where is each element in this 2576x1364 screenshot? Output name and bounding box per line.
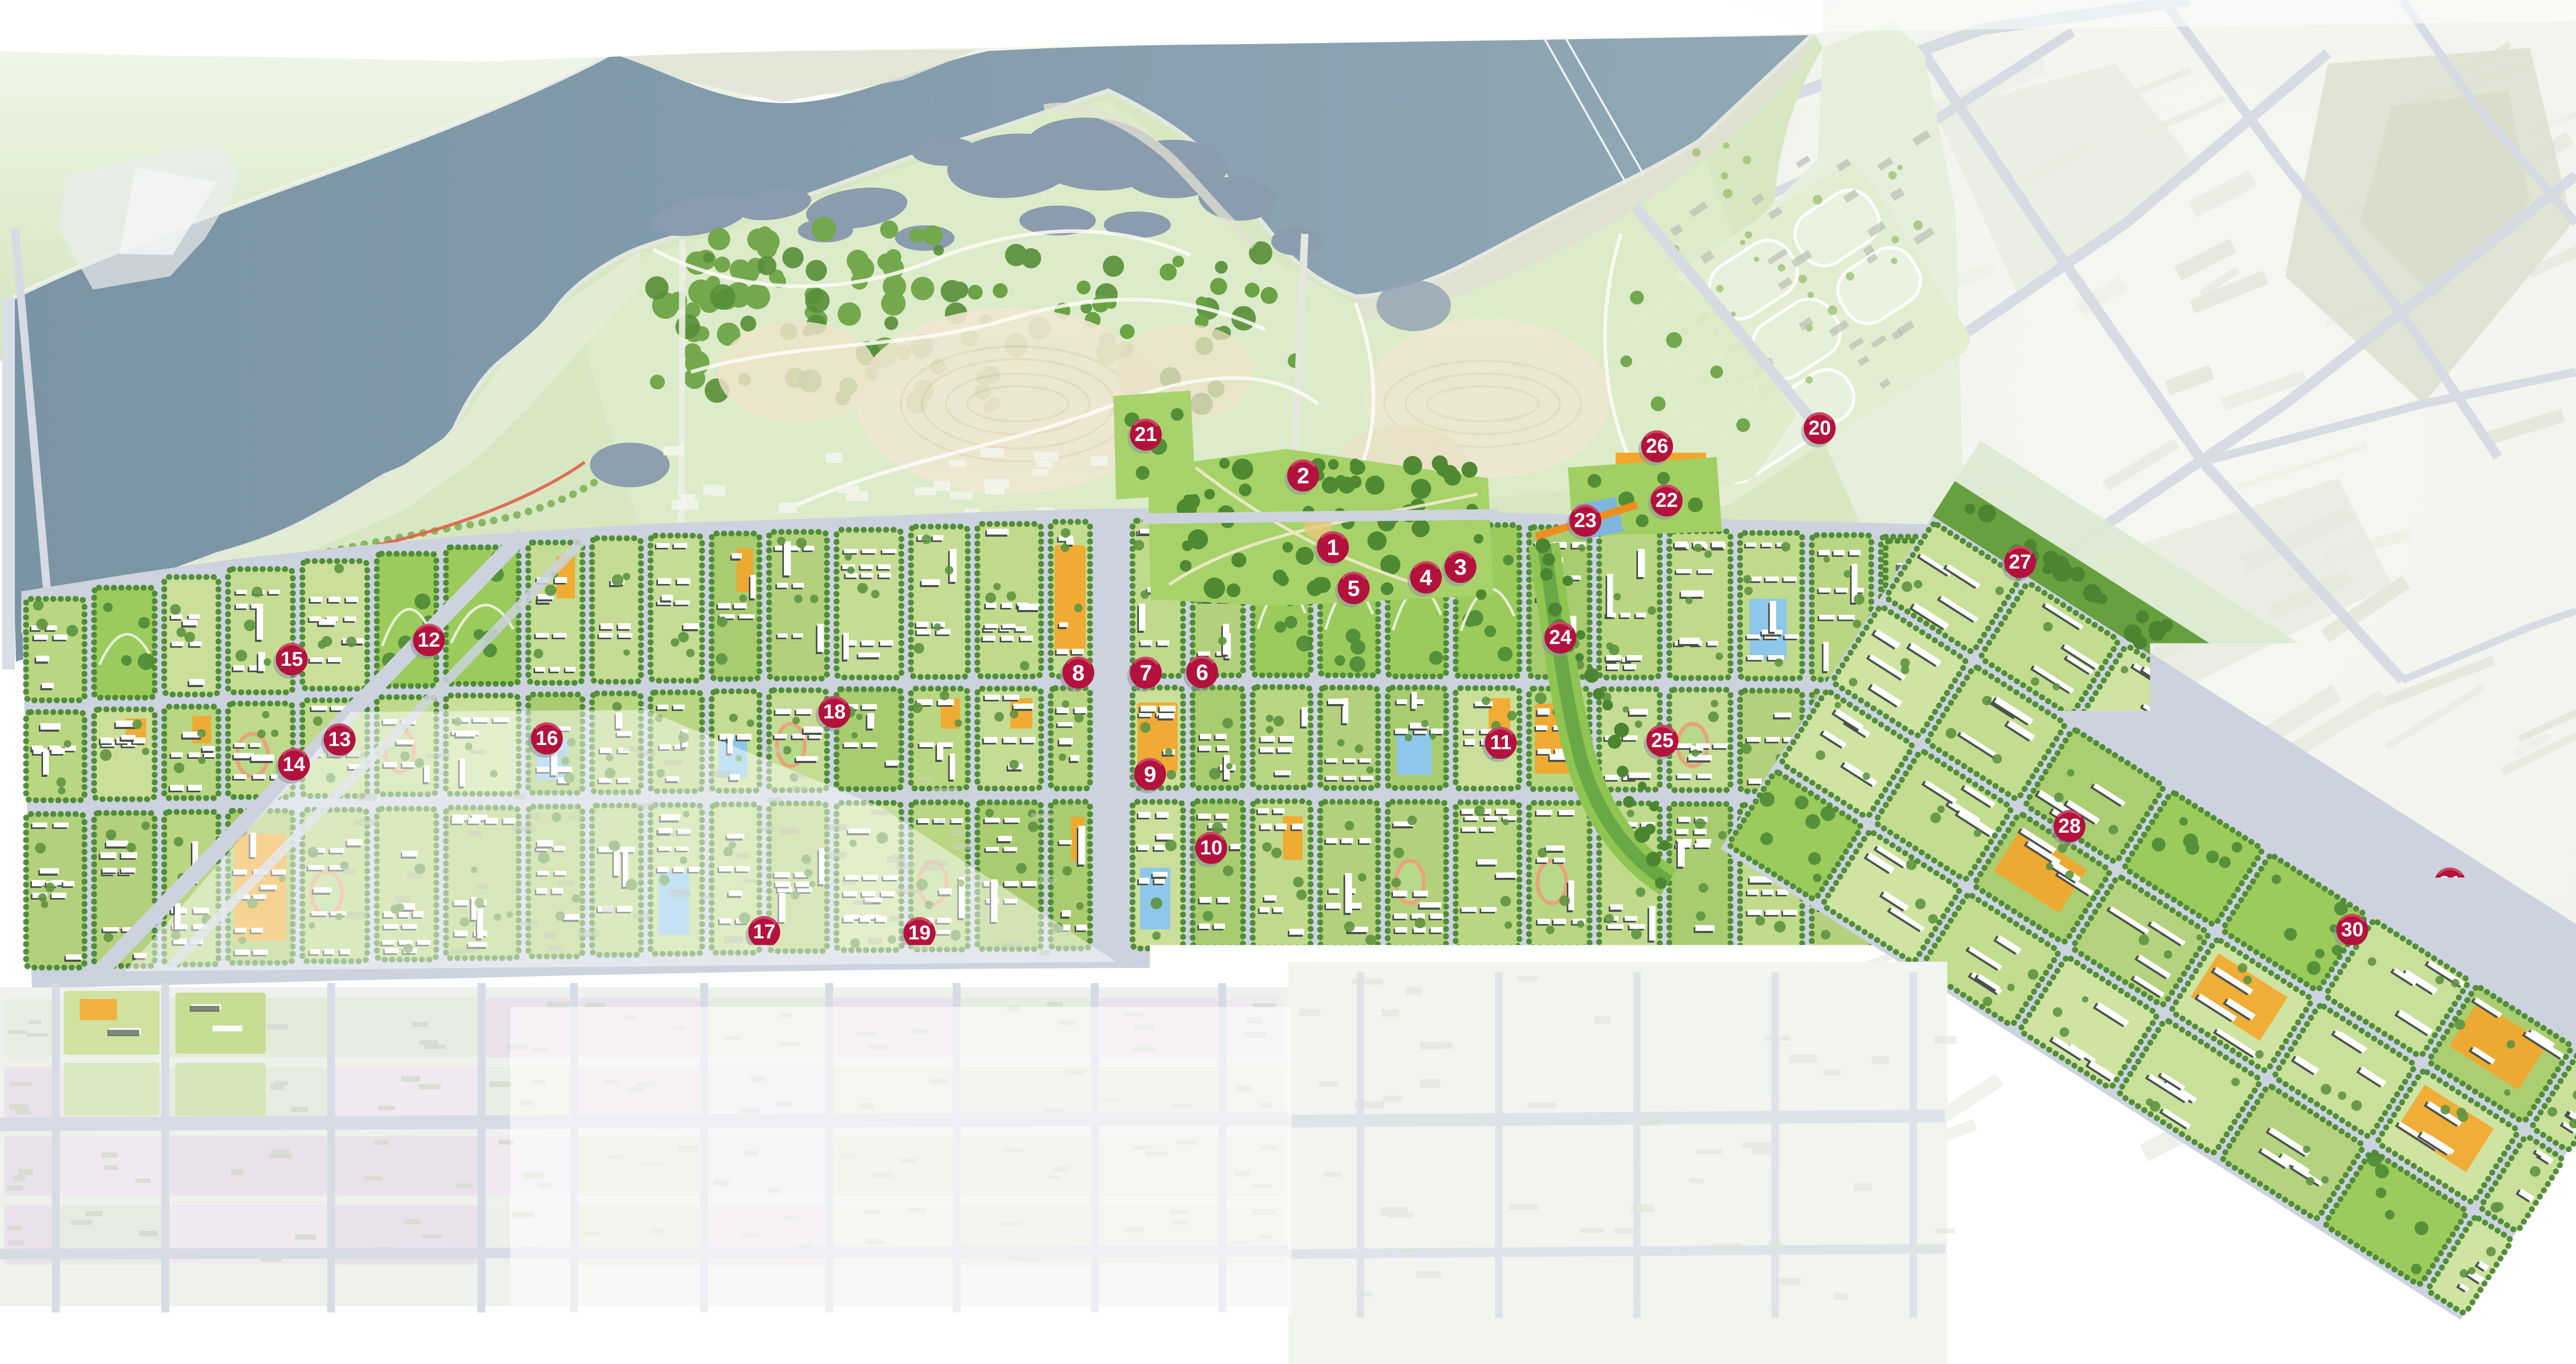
svg-text:30: 30 bbox=[1586, 1209, 1610, 1233]
svg-text:2: 2 bbox=[553, 1062, 565, 1088]
svg-text:11: 11 bbox=[876, 1098, 899, 1121]
svg-text:4: 4 bbox=[553, 1132, 566, 1158]
svg-text:5: 5 bbox=[1347, 576, 1359, 601]
svg-text:16: 16 bbox=[876, 1282, 900, 1305]
svg-text:21: 21 bbox=[1135, 423, 1157, 446]
svg-text:27: 27 bbox=[1586, 1098, 1610, 1121]
svg-text:18: 18 bbox=[823, 701, 846, 723]
svg-text:3: 3 bbox=[1454, 555, 1466, 580]
svg-text:13: 13 bbox=[328, 728, 351, 751]
svg-text:26: 26 bbox=[1586, 1063, 1610, 1086]
svg-text:14: 14 bbox=[283, 753, 305, 776]
svg-text:11: 11 bbox=[1490, 732, 1511, 754]
svg-text:23: 23 bbox=[1240, 1245, 1264, 1268]
svg-text:4: 4 bbox=[1420, 565, 1432, 590]
svg-text:9: 9 bbox=[1144, 762, 1156, 787]
svg-text:2: 2 bbox=[1297, 463, 1309, 488]
svg-text:19: 19 bbox=[1240, 1098, 1264, 1121]
svg-text:26: 26 bbox=[1646, 435, 1668, 458]
svg-text:13: 13 bbox=[876, 1173, 900, 1197]
svg-text:29: 29 bbox=[1586, 1173, 1610, 1197]
svg-text:1: 1 bbox=[1327, 535, 1339, 560]
svg-text:6: 6 bbox=[1196, 660, 1208, 685]
svg-text:5: 5 bbox=[553, 1172, 565, 1198]
svg-text:31: 31 bbox=[1586, 1245, 1610, 1268]
svg-text:17: 17 bbox=[1240, 1028, 1264, 1051]
svg-text:31: 31 bbox=[2439, 872, 2461, 895]
svg-text:14: 14 bbox=[876, 1209, 900, 1233]
svg-text:29: 29 bbox=[2105, 1042, 2127, 1064]
svg-text:8: 8 bbox=[1072, 660, 1084, 685]
svg-text:20: 20 bbox=[1809, 417, 1831, 439]
svg-text:10: 10 bbox=[1200, 837, 1222, 859]
svg-text:1: 1 bbox=[553, 1027, 565, 1053]
svg-text:12: 12 bbox=[418, 629, 440, 651]
svg-text:28: 28 bbox=[1586, 1133, 1610, 1157]
svg-text:30: 30 bbox=[2341, 919, 2363, 941]
svg-text:15: 15 bbox=[876, 1245, 900, 1268]
svg-text:16: 16 bbox=[536, 727, 558, 750]
svg-text:20: 20 bbox=[1240, 1133, 1264, 1157]
svg-text:10: 10 bbox=[876, 1063, 900, 1086]
svg-text:12: 12 bbox=[876, 1133, 900, 1157]
svg-text:25: 25 bbox=[1651, 730, 1674, 752]
svg-text:9: 9 bbox=[881, 1027, 894, 1053]
svg-text:23: 23 bbox=[1574, 510, 1597, 532]
svg-text:25: 25 bbox=[1586, 1028, 1610, 1051]
svg-text:18: 18 bbox=[1240, 1063, 1264, 1086]
svg-text:24: 24 bbox=[1549, 626, 1572, 649]
svg-text:22: 22 bbox=[1240, 1209, 1264, 1233]
svg-text:22: 22 bbox=[1656, 489, 1678, 512]
svg-text:28: 28 bbox=[2058, 815, 2081, 837]
svg-text:3: 3 bbox=[553, 1097, 565, 1123]
svg-text:27: 27 bbox=[2009, 551, 2031, 573]
svg-text:7: 7 bbox=[553, 1244, 565, 1270]
svg-text:7: 7 bbox=[1139, 660, 1152, 685]
svg-text:24: 24 bbox=[1240, 1282, 1264, 1305]
svg-text:6: 6 bbox=[553, 1208, 565, 1234]
svg-text:15: 15 bbox=[281, 648, 303, 671]
svg-text:21: 21 bbox=[1240, 1173, 1264, 1197]
svg-text:17: 17 bbox=[753, 921, 775, 943]
svg-text:19: 19 bbox=[908, 922, 931, 944]
svg-text:8: 8 bbox=[553, 1281, 565, 1307]
